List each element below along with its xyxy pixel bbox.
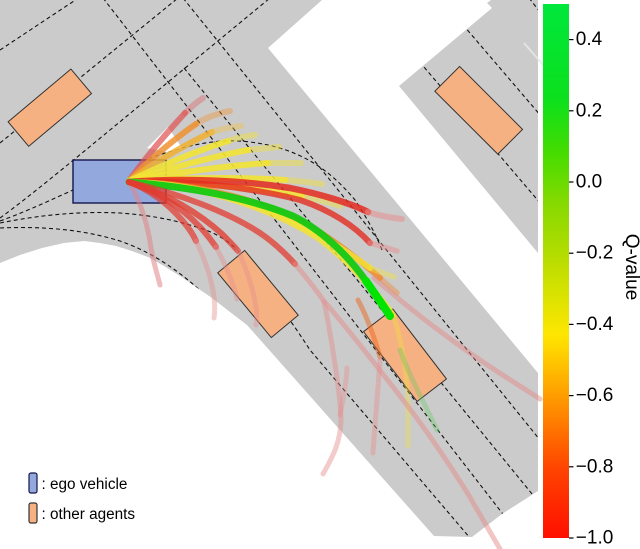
svg-text:: other agents: : other agents [42,506,136,523]
svg-text:Q-value: Q-value [621,234,640,301]
svg-text:0.0: 0.0 [576,172,602,193]
svg-text:−1.0: −1.0 [576,528,614,549]
svg-text:−0.6: −0.6 [576,385,614,406]
svg-text:: ego vehicle: : ego vehicle [42,476,128,493]
svg-text:0.2: 0.2 [576,100,602,121]
svg-text:−0.8: −0.8 [576,456,614,477]
svg-text:0.4: 0.4 [576,29,603,50]
svg-text:−0.4: −0.4 [576,314,614,335]
svg-text:−0.2: −0.2 [576,243,614,264]
